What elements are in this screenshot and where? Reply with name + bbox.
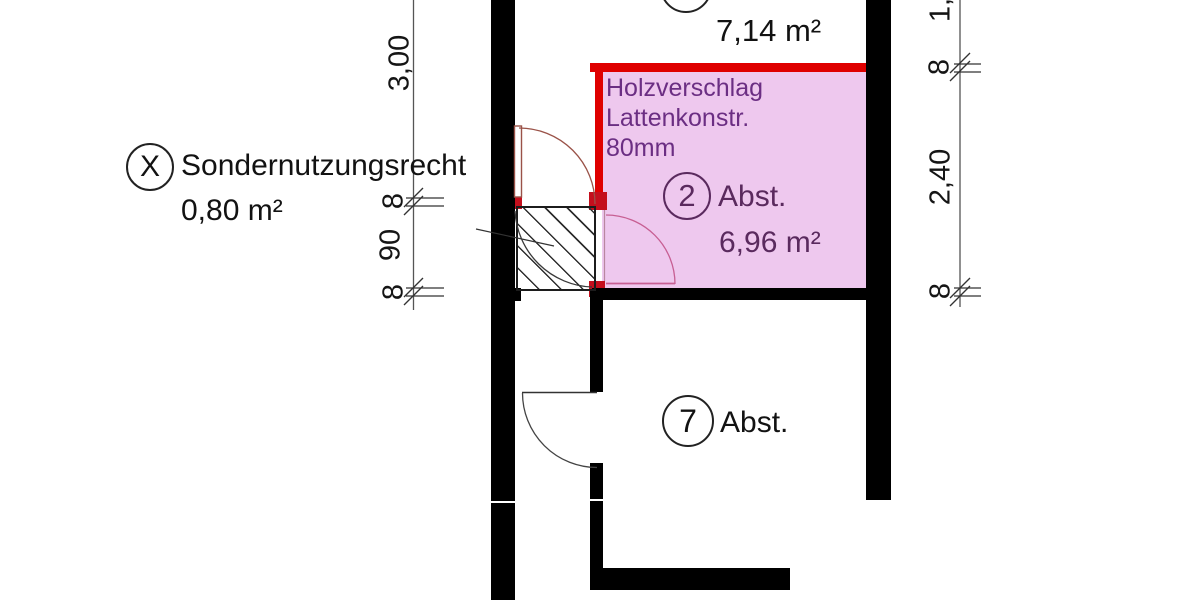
plan-linework — [0, 0, 1200, 600]
dim-left-wall-top: 8 — [378, 193, 411, 209]
partition-note-line1: Holzverschlag — [606, 73, 763, 103]
room-7-badge: 7 — [662, 395, 714, 447]
partition-note-line3: 80mm — [606, 133, 763, 163]
partition-note: Holzverschlag Lattenkonstr. 80mm — [606, 73, 763, 163]
dim-right-partial: 1, — [925, 0, 958, 22]
room-7-name-label: Abst. — [720, 406, 788, 440]
special-use-name-label: Sondernutzungsrecht — [181, 149, 466, 183]
special-use-leader-line — [476, 229, 554, 246]
dim-left-wall-bottom: 8 — [378, 284, 411, 300]
dim-right-wall-top: 8 — [924, 59, 957, 75]
dim-right-wall-bottom: 8 — [925, 283, 958, 299]
floor-plan-canvas: X 2 7 7,14 m² Sondernutzungsrecht 0,80 m… — [0, 0, 1200, 600]
hatch-swing-arc — [515, 211, 592, 287]
dim-left-opening: 90 — [375, 229, 408, 261]
special-use-symbol: X — [140, 150, 160, 184]
door-room7-swing-arc — [523, 393, 598, 468]
room-2-number: 2 — [678, 178, 695, 214]
dim-right-span: 2,40 — [925, 149, 958, 205]
special-use-area-label: 0,80 m² — [181, 194, 283, 228]
dim-left-span: 3,00 — [384, 35, 417, 91]
room-7-number: 7 — [679, 403, 697, 440]
door-niche-leaf — [515, 126, 522, 197]
room-2-badge: 2 — [663, 172, 711, 220]
room-2-name-label: Abst. — [718, 180, 786, 214]
door-niche-swing-arc — [519, 128, 595, 204]
special-use-badge: X — [126, 143, 174, 191]
partition-note-line2: Lattenkonstr. — [606, 103, 763, 133]
door-room2-swing-arc — [606, 215, 675, 284]
room-2-area-label: 6,96 m² — [719, 226, 821, 260]
room-top-area-label: 7,14 m² — [716, 14, 821, 48]
